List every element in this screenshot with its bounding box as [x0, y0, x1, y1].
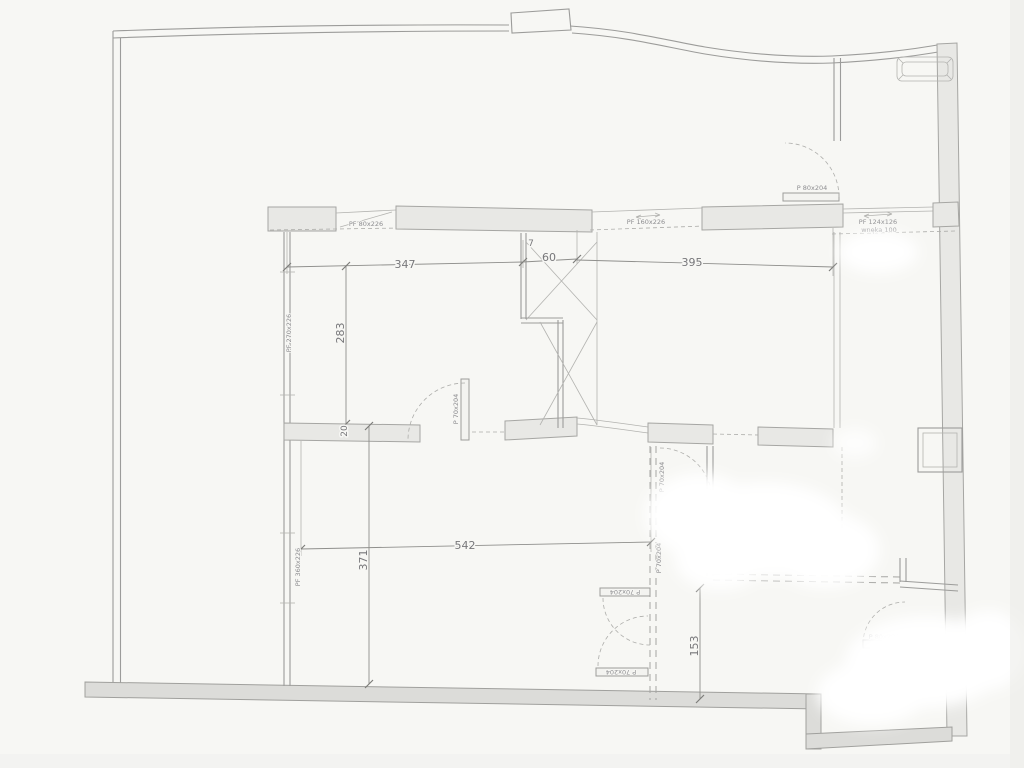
door-label-corridor-lower: P 70x204 — [655, 543, 663, 574]
dim-60: 60 — [542, 251, 556, 264]
dim-153: 153 — [688, 636, 701, 657]
window-label-top-mid: PF 160x226 — [627, 218, 665, 226]
dim-20: 20 — [340, 425, 350, 437]
dim-371: 371 — [357, 550, 370, 571]
door-leaf — [783, 193, 839, 201]
window-label-left-upper: PF 270x226 — [285, 314, 293, 352]
door-label-top-right: P 80x204 — [797, 184, 828, 192]
dim-7: 7 — [528, 239, 534, 249]
dim-347: 347 — [395, 258, 416, 271]
window-label-top-left: PF 80x226 — [349, 220, 383, 228]
floor-plan: 347 7 60 395 283 20 542 371 153 PF 80x22… — [0, 0, 1024, 768]
dim-395: 395 — [682, 256, 703, 269]
door-leaf — [461, 379, 469, 440]
dim-542: 542 — [455, 539, 476, 552]
dim-283: 283 — [334, 323, 347, 344]
window-label-left-lower: PF 360x226 — [294, 548, 302, 586]
window-label-top-right: PF 124x126 — [859, 218, 897, 226]
door-label-bottom-1: P 70x204 — [610, 588, 641, 596]
door-label-mid: P 70x204 — [452, 394, 460, 425]
door-label-bottom-2: P 70x204 — [606, 668, 637, 676]
